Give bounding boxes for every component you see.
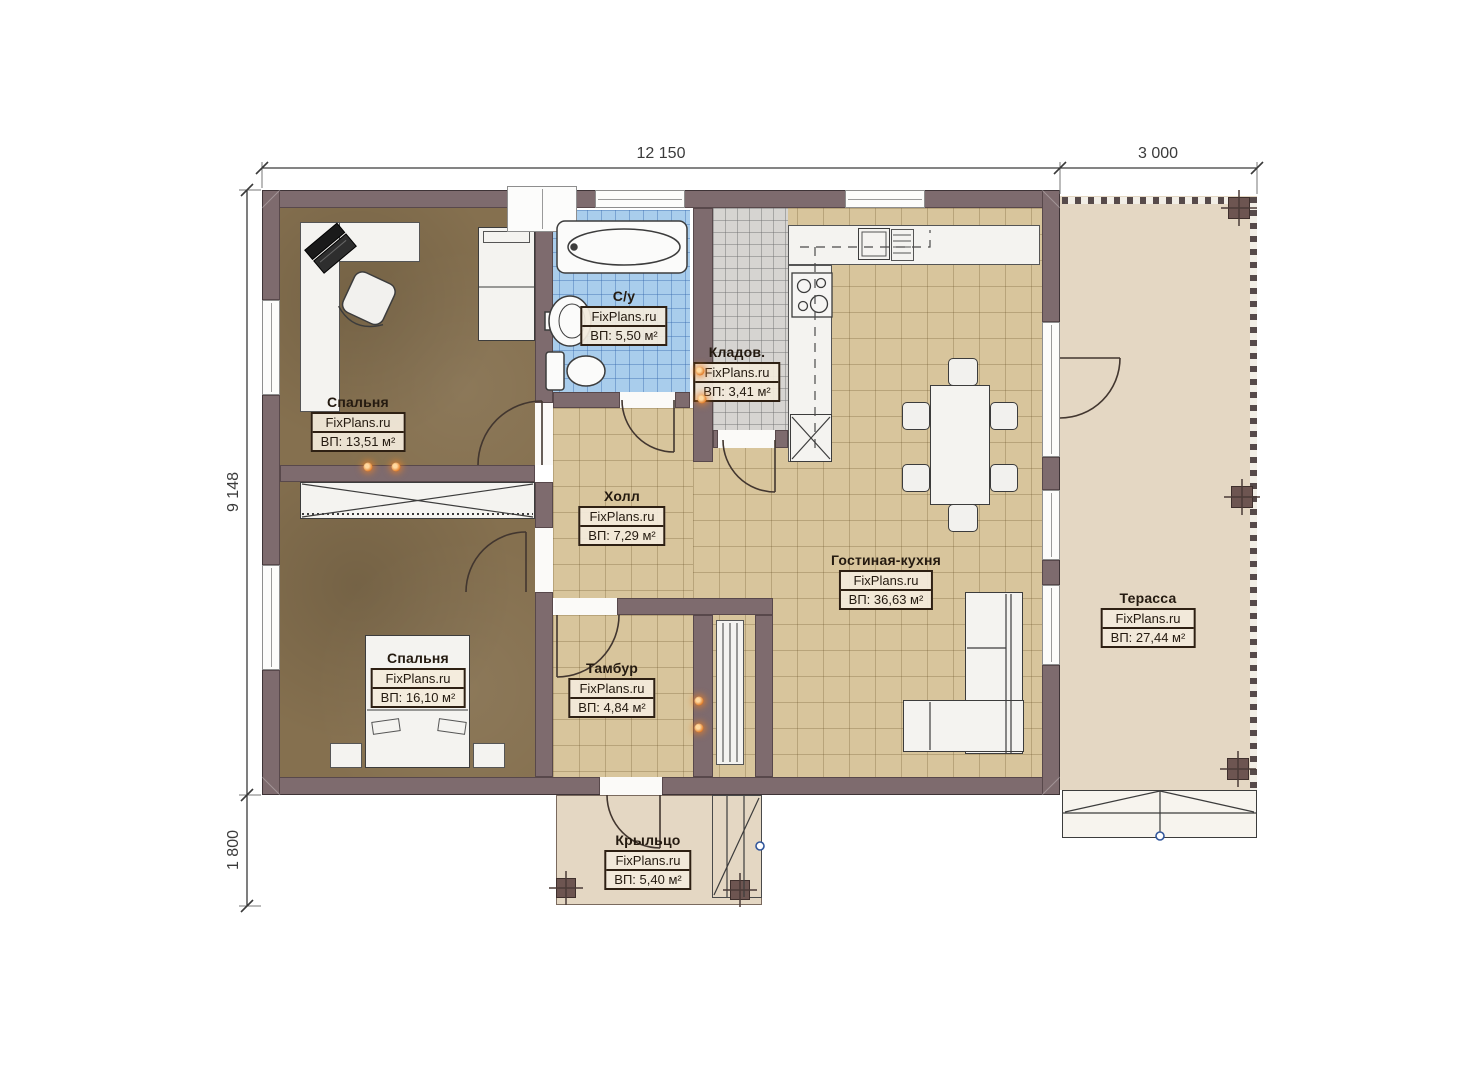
brand-text: FixPlans.ru xyxy=(373,670,464,689)
dining-chair xyxy=(902,464,930,492)
wall-left-3 xyxy=(262,670,280,795)
wall-hall-bottom xyxy=(617,598,773,615)
wall-storage-left xyxy=(693,208,713,462)
floor-terrace xyxy=(1060,196,1257,790)
hall-wardrobe xyxy=(716,620,744,765)
wall-bottom-left xyxy=(262,777,600,795)
vent-shaft xyxy=(507,186,577,232)
dining-chair xyxy=(990,464,1018,492)
dim-height-porch: 1 800 xyxy=(225,830,242,870)
room-title: Крыльцо xyxy=(604,832,691,848)
marker-dot xyxy=(392,463,401,472)
area-text: ВП: 13,51 м² xyxy=(313,433,404,450)
marker-dot xyxy=(696,367,705,376)
wall-storage-bottom-b xyxy=(775,430,788,448)
window-bathroom-top xyxy=(595,190,685,208)
marker-dot xyxy=(695,697,704,706)
terrace-steps xyxy=(1062,790,1257,838)
bed-single-pillow xyxy=(483,231,530,243)
marker-dot xyxy=(695,724,704,733)
brand-text: FixPlans.ru xyxy=(1103,610,1194,629)
kitchen-drainer xyxy=(891,229,914,261)
room-label-living-kitchen: Гостиная-кухня FixPlans.ru ВП: 36,63 м² xyxy=(831,552,941,610)
marker-dot xyxy=(364,463,373,472)
dim-width-main: 12 150 xyxy=(637,145,686,162)
door-gap-entrance xyxy=(600,777,662,795)
wall-right-3 xyxy=(1042,560,1060,585)
brand-text: FixPlans.ru xyxy=(582,308,665,327)
window-living-right-2 xyxy=(1042,585,1060,665)
wall-bedroom2-right-b xyxy=(535,592,553,777)
desk-side xyxy=(300,222,340,412)
area-text: ВП: 27,44 м² xyxy=(1103,629,1194,646)
area-text: ВП: 5,40 м² xyxy=(606,871,689,888)
dim-width-terrace: 3 000 xyxy=(1138,145,1178,162)
brand-text: FixPlans.ru xyxy=(313,414,404,433)
room-title: Кладов. xyxy=(693,344,780,360)
dining-chair xyxy=(990,402,1018,430)
brand-text: FixPlans.ru xyxy=(570,680,653,699)
room-label-terrace: Терасса FixPlans.ru ВП: 27,44 м² xyxy=(1101,590,1196,648)
room-title: Спальня xyxy=(311,394,406,410)
area-text: ВП: 4,84 м² xyxy=(570,699,653,716)
room-title: Гостиная-кухня xyxy=(831,552,941,568)
room-label-storage: Кладов. FixPlans.ru ВП: 3,41 м² xyxy=(693,344,780,402)
marker-dot xyxy=(698,395,707,404)
kitchen-cabinet xyxy=(790,414,832,462)
wardrobe-built-in xyxy=(300,482,535,519)
terrace-post xyxy=(1227,758,1249,780)
room-title: Тамбур xyxy=(568,660,655,676)
room-label-porch: Крыльцо FixPlans.ru ВП: 5,40 м² xyxy=(604,832,691,890)
terrace-post xyxy=(1228,197,1250,219)
wall-bath-bottom-b xyxy=(675,392,690,408)
porch-post xyxy=(556,878,576,898)
wall-bottom-right xyxy=(662,777,1060,795)
room-label-bedroom-1: Спальня FixPlans.ru ВП: 13,51 м² xyxy=(311,394,406,452)
window-bedroom2-left xyxy=(262,565,280,670)
area-text: ВП: 7,29 м² xyxy=(580,527,663,544)
room-label-bedroom-2: Спальня FixPlans.ru ВП: 16,10 м² xyxy=(371,650,466,708)
area-text: ВП: 3,41 м² xyxy=(695,383,778,400)
kitchen-counter-top xyxy=(788,225,1040,265)
floor-plan-canvas: 12 150 3 000 9 148 1 800 xyxy=(0,0,1473,1080)
room-label-hall: Холл FixPlans.ru ВП: 7,29 м² xyxy=(578,488,665,546)
door-gap-storage xyxy=(718,430,775,448)
dim-height-main: 9 148 xyxy=(225,472,242,512)
door-gap-hall-tambour xyxy=(555,598,617,615)
window-kitchen-top xyxy=(845,190,925,208)
dining-chair xyxy=(948,504,978,532)
door-gap-bedroom2 xyxy=(535,528,553,592)
kitchen-sink xyxy=(858,228,890,260)
terrace-post xyxy=(1231,486,1253,508)
nightstand-left xyxy=(330,743,362,768)
brand-text: FixPlans.ru xyxy=(695,364,778,383)
wall-bedroom-divider xyxy=(280,465,535,482)
wall-right-4 xyxy=(1042,665,1060,795)
brand-text: FixPlans.ru xyxy=(606,852,689,871)
area-text: ВП: 16,10 м² xyxy=(373,689,464,706)
window-living-right-1 xyxy=(1042,490,1060,560)
wall-bedroom2-right-a xyxy=(535,482,553,528)
wall-niche-right xyxy=(755,615,773,777)
nightstand-right xyxy=(473,743,505,768)
room-label-bathroom: С/у FixPlans.ru ВП: 5,50 м² xyxy=(580,288,667,346)
room-title: Холл xyxy=(578,488,665,504)
bed-single xyxy=(478,227,535,341)
area-text: ВП: 5,50 м² xyxy=(582,327,665,344)
window-bedroom1-left xyxy=(262,300,280,395)
dining-chair xyxy=(902,402,930,430)
wall-right-1 xyxy=(1042,190,1060,322)
wall-left-2 xyxy=(262,395,280,565)
door-gap-bathroom xyxy=(620,392,675,408)
area-text: ВП: 36,63 м² xyxy=(841,591,932,608)
wall-right-2 xyxy=(1042,457,1060,490)
room-title: Спальня xyxy=(371,650,466,666)
wall-bedroom1-right xyxy=(535,208,553,403)
wall-bath-bottom-a xyxy=(553,392,620,408)
room-title: Терасса xyxy=(1101,590,1196,606)
wall-left-1 xyxy=(262,190,280,300)
sofa-horizontal xyxy=(903,700,1024,752)
dining-chair xyxy=(948,358,978,386)
porch-post xyxy=(730,880,750,900)
brand-text: FixPlans.ru xyxy=(580,508,663,527)
room-label-tambour: Тамбур FixPlans.ru ВП: 4,84 м² xyxy=(568,660,655,718)
dining-table xyxy=(930,385,990,505)
terrace-door-glazing xyxy=(1042,322,1060,457)
brand-text: FixPlans.ru xyxy=(841,572,932,591)
room-title: С/у xyxy=(580,288,667,304)
door-gap-bedroom1 xyxy=(535,403,553,465)
